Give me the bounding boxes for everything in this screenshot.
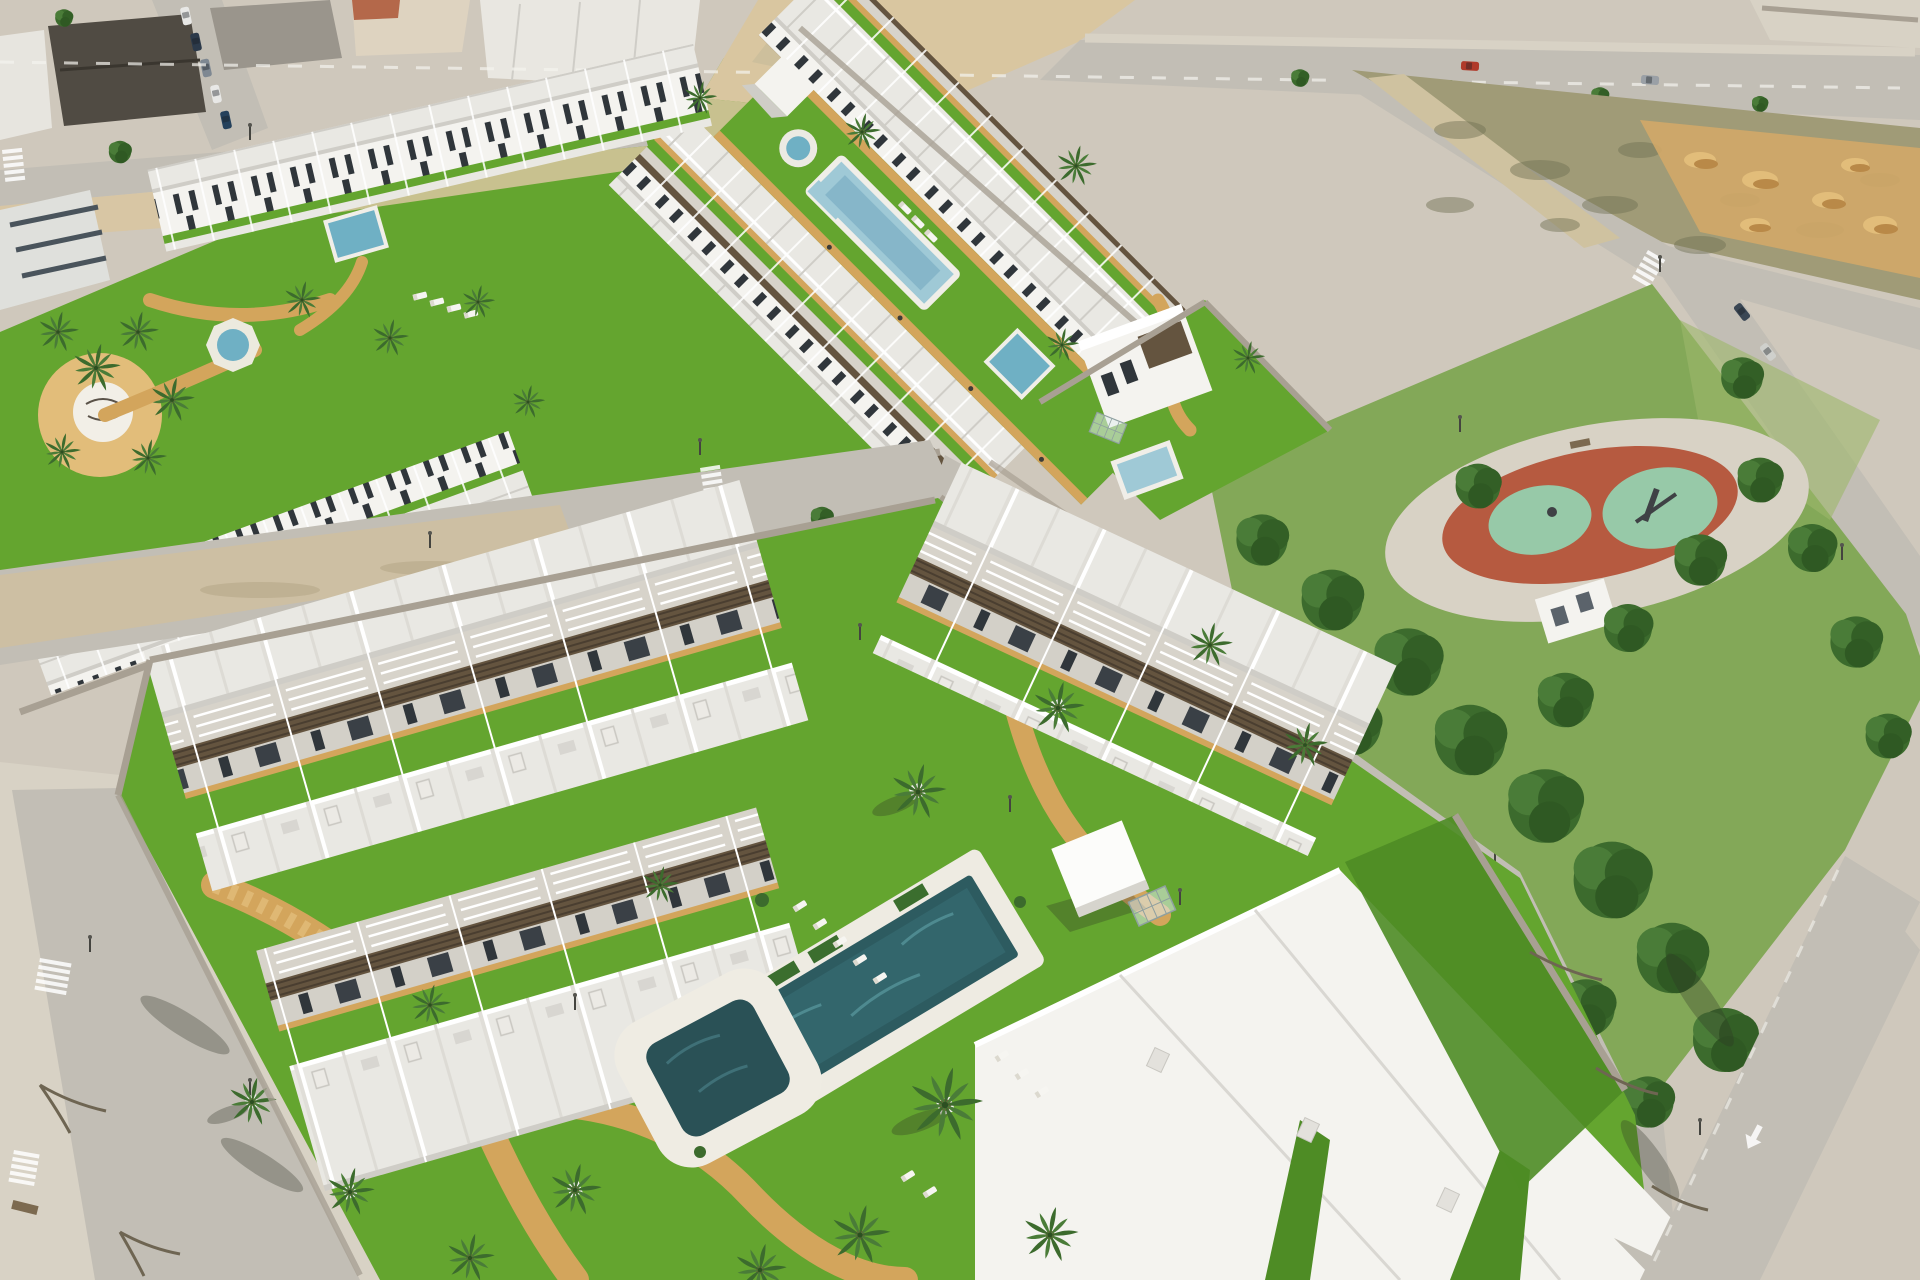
aerial-render-figure: Aerial 3D render of a new coastal reside… bbox=[0, 0, 1920, 1280]
terracotta-roof bbox=[352, 0, 400, 20]
red-car bbox=[1461, 61, 1479, 71]
aerial-render bbox=[0, 0, 1920, 1280]
